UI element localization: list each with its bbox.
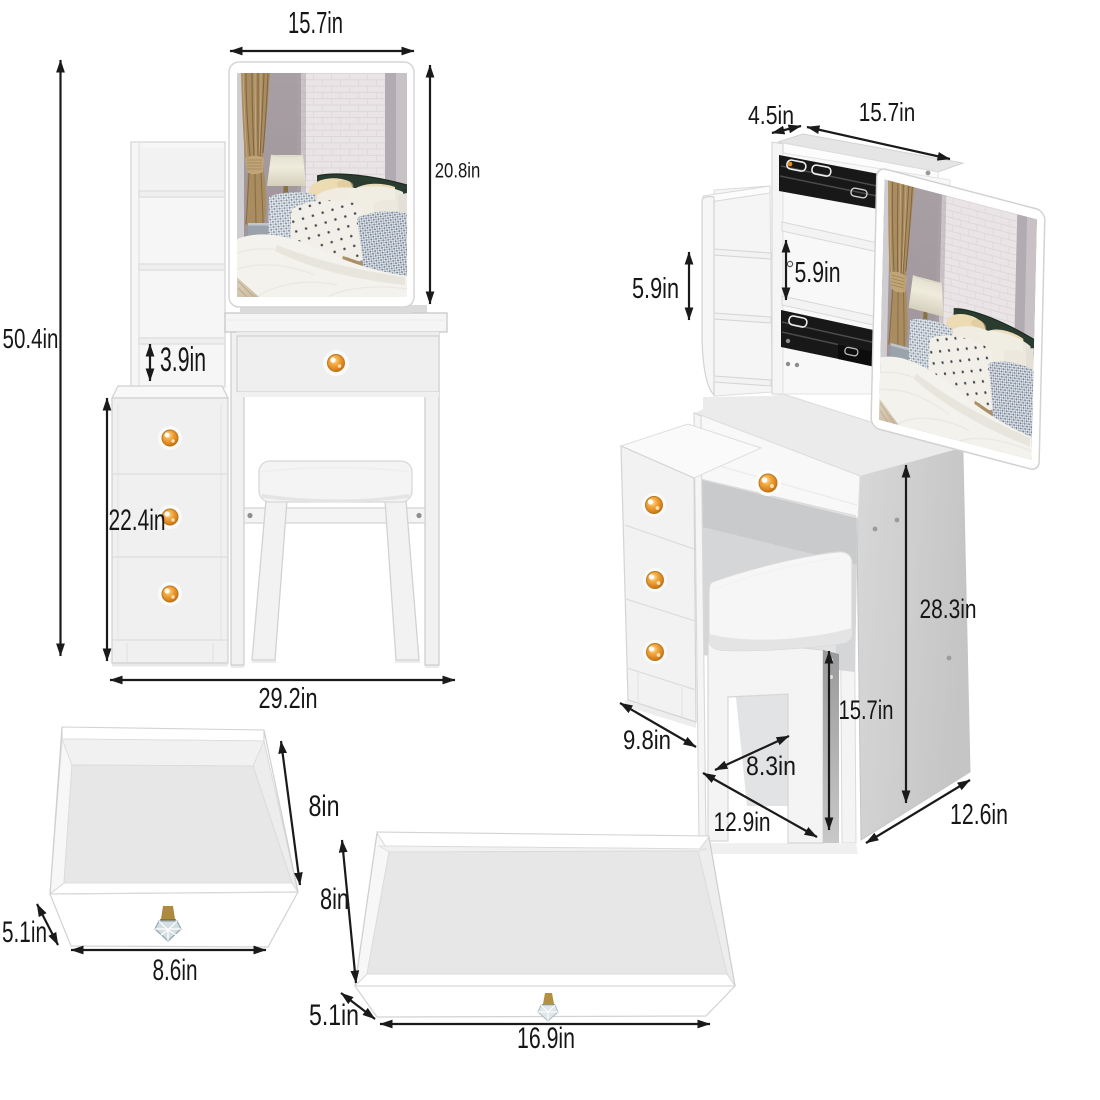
- svg-text:3.9in: 3.9in: [160, 341, 206, 379]
- svg-text:8in: 8in: [320, 882, 349, 916]
- svg-text:50.4in: 50.4in: [3, 324, 59, 355]
- svg-text:5.9in: 5.9in: [632, 273, 679, 305]
- svg-text:15.7in: 15.7in: [859, 98, 916, 127]
- svg-text:9.8in: 9.8in: [623, 726, 671, 755]
- svg-text:5.1in: 5.1in: [2, 916, 47, 949]
- svg-text:28.3in: 28.3in: [919, 595, 976, 625]
- svg-text:8.6in: 8.6in: [153, 954, 198, 987]
- svg-text:22.4in: 22.4in: [108, 504, 165, 536]
- svg-text:16.9in: 16.9in: [517, 1020, 575, 1055]
- svg-text:29.2in: 29.2in: [259, 683, 318, 715]
- svg-text:12.6in: 12.6in: [950, 799, 1008, 831]
- svg-text:5.1in: 5.1in: [309, 998, 359, 1032]
- svg-text:15.7in: 15.7in: [288, 5, 343, 41]
- svg-text:15.7in: 15.7in: [839, 695, 894, 724]
- svg-text:20.8in: 20.8in: [435, 160, 480, 183]
- svg-text:8.3in: 8.3in: [746, 753, 796, 782]
- svg-text:5.9in: 5.9in: [794, 257, 840, 289]
- svg-text:8in: 8in: [308, 789, 339, 823]
- svg-text:12.9in: 12.9in: [713, 808, 770, 838]
- svg-text:4.5in: 4.5in: [748, 102, 794, 130]
